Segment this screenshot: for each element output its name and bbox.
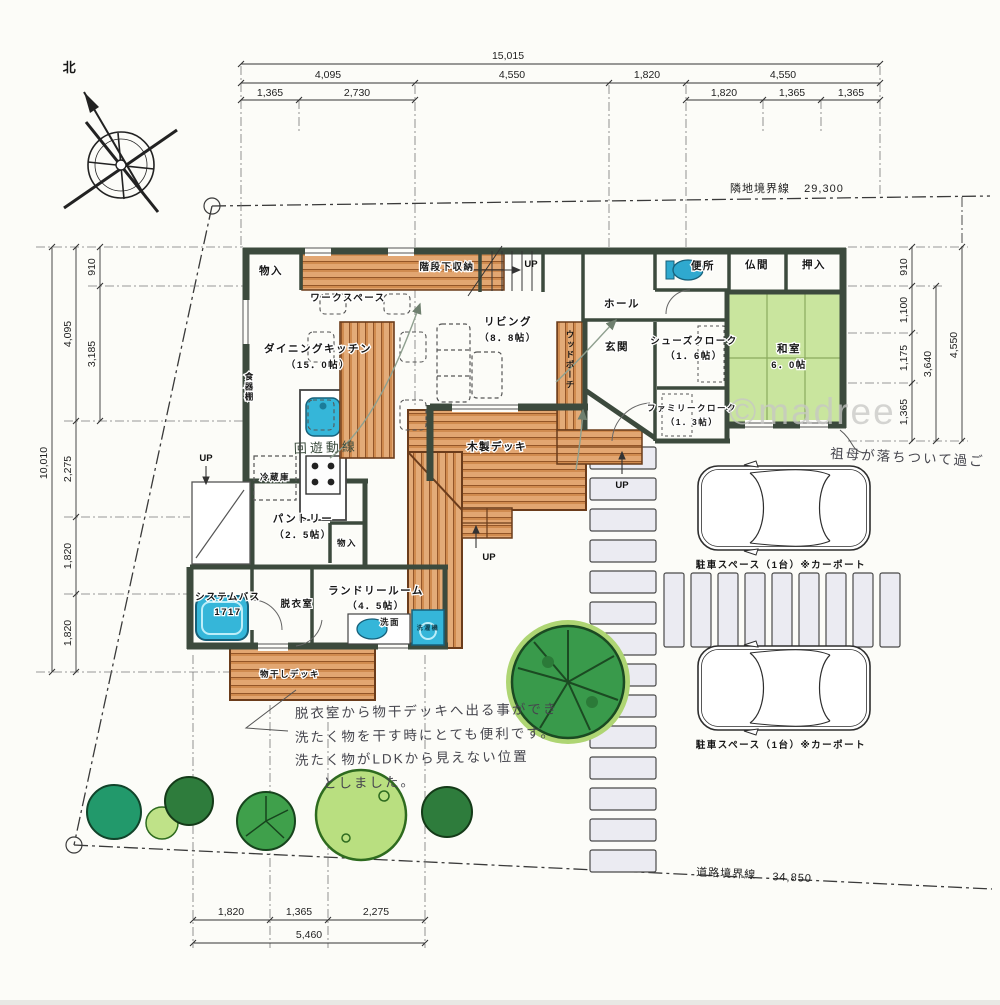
svg-text:6．0帖: 6．0帖 — [771, 359, 807, 371]
road-boundary-value: 34,850 — [772, 871, 812, 885]
svg-text:洗たく物を干す時にとても便利です。: 洗たく物を干す時にとても便利です。 — [295, 725, 556, 745]
room-label-pantry: パントリー — [273, 513, 334, 525]
watermark: ©madree — [729, 391, 896, 432]
svg-text:4,095: 4,095 — [315, 69, 341, 81]
parking-label-2: 駐車スペース（1台）※カーポート — [696, 739, 866, 751]
tree — [422, 787, 472, 837]
label-drying-deck: 物干しデッキ — [260, 669, 320, 679]
room-label-workspace: ワークスペース — [310, 293, 386, 304]
svg-text:910: 910 — [86, 258, 98, 276]
label-wood-porch: ウッドポーチ — [565, 330, 575, 390]
svg-text:4,550: 4,550 — [499, 69, 525, 81]
svg-text:1,365: 1,365 — [257, 87, 283, 99]
svg-text:としました。: としました。 — [323, 774, 416, 791]
dim-right-total: 4,550 — [948, 332, 960, 358]
room-label-washitsu: 和室 — [776, 342, 801, 355]
room-label-genkan: 玄関 — [605, 340, 629, 353]
svg-text:4,550: 4,550 — [770, 69, 796, 81]
north-arrow-icon — [84, 92, 99, 113]
tree — [165, 777, 213, 825]
svg-text:1,820: 1,820 — [711, 87, 737, 99]
svg-text:2,275: 2,275 — [363, 906, 389, 918]
tree — [87, 785, 141, 839]
svg-text:（8．8帖）: （8．8帖） — [479, 332, 537, 344]
room-label-oshiire: 押入 — [802, 258, 826, 271]
label-washing-machine: 洗濯機 — [417, 624, 440, 632]
room-label-hall: ホール — [604, 298, 640, 310]
svg-text:UP: UP — [199, 453, 213, 464]
room-label-shoes-cloak: シューズクローク — [650, 335, 738, 347]
svg-text:2,275: 2,275 — [62, 456, 74, 482]
car-1 — [698, 461, 870, 555]
room-label-living: リビング — [484, 315, 532, 328]
svg-text:UP: UP — [482, 552, 496, 563]
stove — [306, 456, 340, 494]
svg-text:1,100: 1,100 — [898, 297, 910, 323]
svg-text:洗たく物がLDKから見えない位置: 洗たく物がLDKから見えない位置 — [295, 749, 529, 768]
car-2 — [698, 641, 870, 735]
room-label-storage1: 物入 — [259, 264, 283, 277]
svg-text:1,820: 1,820 — [62, 543, 74, 569]
room-label-toilet: 便所 — [691, 259, 715, 272]
room-label-system-bath: システムバス — [195, 591, 261, 603]
room-label-dressing-room: 脱衣室 — [280, 598, 313, 610]
north-compass: 北 — [63, 60, 177, 212]
road-boundary-label: 道路境界線 — [696, 865, 757, 882]
svg-text:1,365: 1,365 — [898, 399, 910, 425]
svg-text:1,175: 1,175 — [898, 345, 910, 371]
adjacent-boundary-value: 29,300 — [804, 183, 844, 195]
svg-text:1,820: 1,820 — [218, 906, 244, 918]
room-label-storage2: 物入 — [337, 538, 357, 548]
carport-stepping-stones — [664, 573, 900, 647]
room-label-stair-storage: 階段下収納 — [419, 261, 474, 273]
svg-text:（4．5帖）: （4．5帖） — [347, 600, 405, 612]
room-label-dining-kitchen: ダイニングキッチン — [264, 342, 372, 355]
floor-plan-svg: 隣地境界線 29,300 道路境界線 34,850 北 — [0, 0, 1000, 1000]
north-label: 北 — [63, 60, 78, 75]
room-label-cupboard: 食器棚 — [244, 371, 254, 402]
room-label-laundry-room: ランドリールーム — [328, 585, 424, 597]
svg-text:UP: UP — [524, 259, 538, 270]
room-label-refrigerator: 冷蔵庫 — [260, 472, 290, 482]
svg-text:3,185: 3,185 — [86, 341, 98, 367]
dim-bottom-total: 5,460 — [296, 929, 322, 941]
svg-text:（15．0帖）: （15．0帖） — [286, 359, 350, 371]
svg-text:1717: 1717 — [214, 607, 241, 618]
svg-text:（2．5帖）: （2．5帖） — [274, 529, 332, 541]
dim-top-total: 15,015 — [492, 50, 524, 62]
svg-text:（1．6帖）: （1．6帖） — [665, 350, 723, 362]
back-entry — [192, 482, 250, 564]
svg-text:1,820: 1,820 — [634, 69, 660, 81]
svg-text:2,730: 2,730 — [344, 87, 370, 99]
dim-left-total: 10,010 — [38, 447, 50, 479]
note-circulation: 回遊動線 — [294, 439, 359, 456]
site-plan-page: 隣地境界線 29,300 道路境界線 34,850 北 — [0, 0, 1000, 1000]
svg-text:910: 910 — [898, 258, 910, 276]
svg-text:（1．3帖）: （1．3帖） — [666, 417, 718, 427]
room-label-washstand: 洗面 — [380, 617, 400, 627]
svg-text:4,095: 4,095 — [62, 321, 74, 347]
parking-label-1: 駐車スペース（1台）※カーポート — [696, 559, 866, 571]
label-wood-deck: 木製デッキ — [466, 440, 527, 453]
room-label-butsuma: 仏間 — [745, 259, 769, 271]
room-label-family-cloak: ファミリークローク — [647, 403, 737, 413]
svg-text:1,365: 1,365 — [779, 87, 805, 99]
svg-text:UP: UP — [615, 480, 629, 491]
svg-text:1,820: 1,820 — [62, 620, 74, 646]
svg-text:1,365: 1,365 — [286, 906, 312, 918]
svg-text:1,365: 1,365 — [838, 87, 864, 99]
adjacent-boundary-label: 隣地境界線 — [730, 181, 790, 195]
dim-right-mid: 3,640 — [922, 351, 934, 377]
